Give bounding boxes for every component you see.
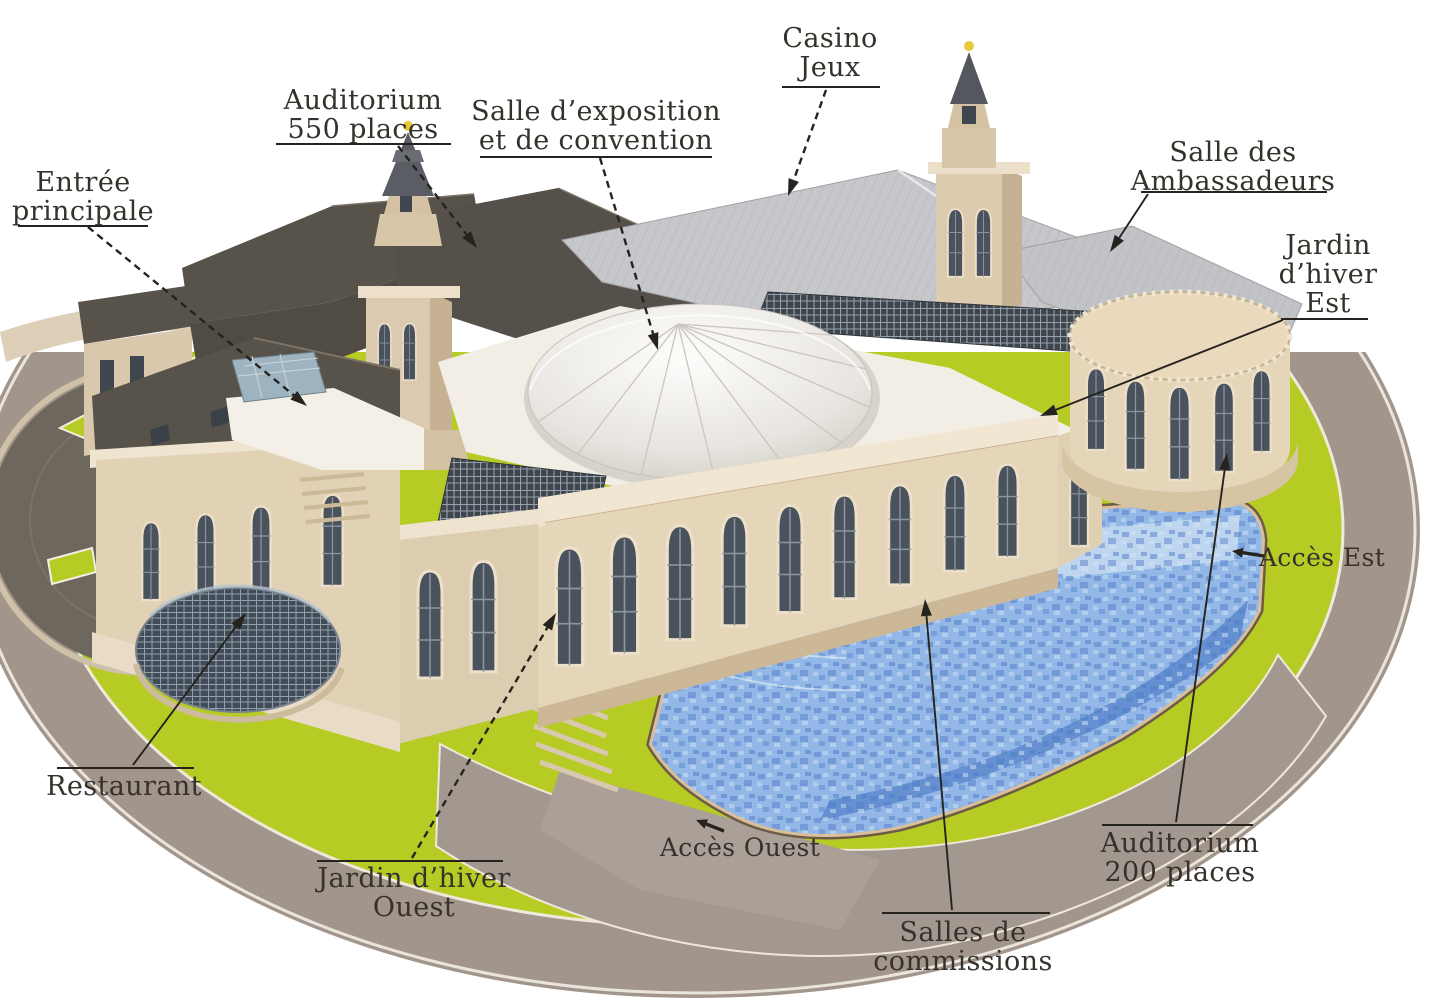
label-line: commissions bbox=[873, 947, 1052, 976]
label-line: Auditorium bbox=[1101, 829, 1259, 858]
label-rule-under bbox=[782, 86, 880, 88]
label-entree-principale: Entréeprincipale bbox=[12, 168, 154, 226]
label-jardin-hiver-ouest: Jardin d’hiverOuest bbox=[317, 864, 510, 922]
label-restaurant: Restaurant bbox=[46, 772, 202, 801]
label-line: Auditorium bbox=[284, 86, 442, 115]
label-auditorium-550: Auditorium550 places bbox=[284, 86, 442, 144]
label-line: Accès Est bbox=[1259, 543, 1385, 572]
label-line: Jardin bbox=[1279, 231, 1378, 260]
label-acces-est: Accès Est bbox=[1259, 543, 1385, 572]
label-salles-commissions: Salles decommissions bbox=[873, 918, 1052, 976]
label-rule-over bbox=[317, 860, 503, 862]
label-line: 200 places bbox=[1101, 858, 1259, 887]
label-line: Ouest bbox=[317, 893, 510, 922]
label-auditorium-200: Auditorium200 places bbox=[1101, 829, 1259, 887]
label-line: Salles de bbox=[873, 918, 1052, 947]
label-rule-under bbox=[18, 225, 148, 227]
label-casino: CasinoJeux bbox=[782, 24, 877, 82]
label-jardin-hiver-est: Jardind’hiverEst bbox=[1279, 231, 1378, 318]
label-line: Entrée bbox=[12, 168, 154, 197]
label-salle-ambassadeurs: Salle desAmbassadeurs bbox=[1131, 138, 1336, 196]
label-rule-under bbox=[1281, 318, 1368, 320]
label-line: Casino bbox=[782, 24, 877, 53]
label-rule-under bbox=[1141, 191, 1327, 193]
label-rule-over bbox=[1102, 824, 1253, 826]
annotation-layer: CasinoJeuxAuditorium550 placesSalle d’ex… bbox=[0, 0, 1436, 1000]
label-line: Accès Ouest bbox=[660, 833, 820, 862]
label-line: Salle des bbox=[1131, 138, 1336, 167]
label-line: 550 places bbox=[284, 115, 442, 144]
label-line: Est bbox=[1279, 289, 1378, 318]
label-line: Salle d’exposition bbox=[471, 97, 721, 126]
label-rule-under bbox=[276, 143, 451, 145]
label-line: Restaurant bbox=[46, 772, 202, 801]
label-line: Jeux bbox=[782, 53, 877, 82]
label-line: principale bbox=[12, 197, 154, 226]
label-rule-over bbox=[57, 767, 194, 769]
label-rule-under bbox=[480, 156, 712, 158]
label-rule-over bbox=[882, 912, 1050, 914]
label-line: d’hiver bbox=[1279, 260, 1378, 289]
label-line: et de convention bbox=[471, 126, 721, 155]
diagram-stage: CasinoJeuxAuditorium550 placesSalle d’ex… bbox=[0, 0, 1436, 1000]
label-acces-ouest: Accès Ouest bbox=[660, 833, 820, 862]
label-salle-exposition: Salle d’expositionet de convention bbox=[471, 97, 721, 155]
label-line: Jardin d’hiver bbox=[317, 864, 510, 893]
